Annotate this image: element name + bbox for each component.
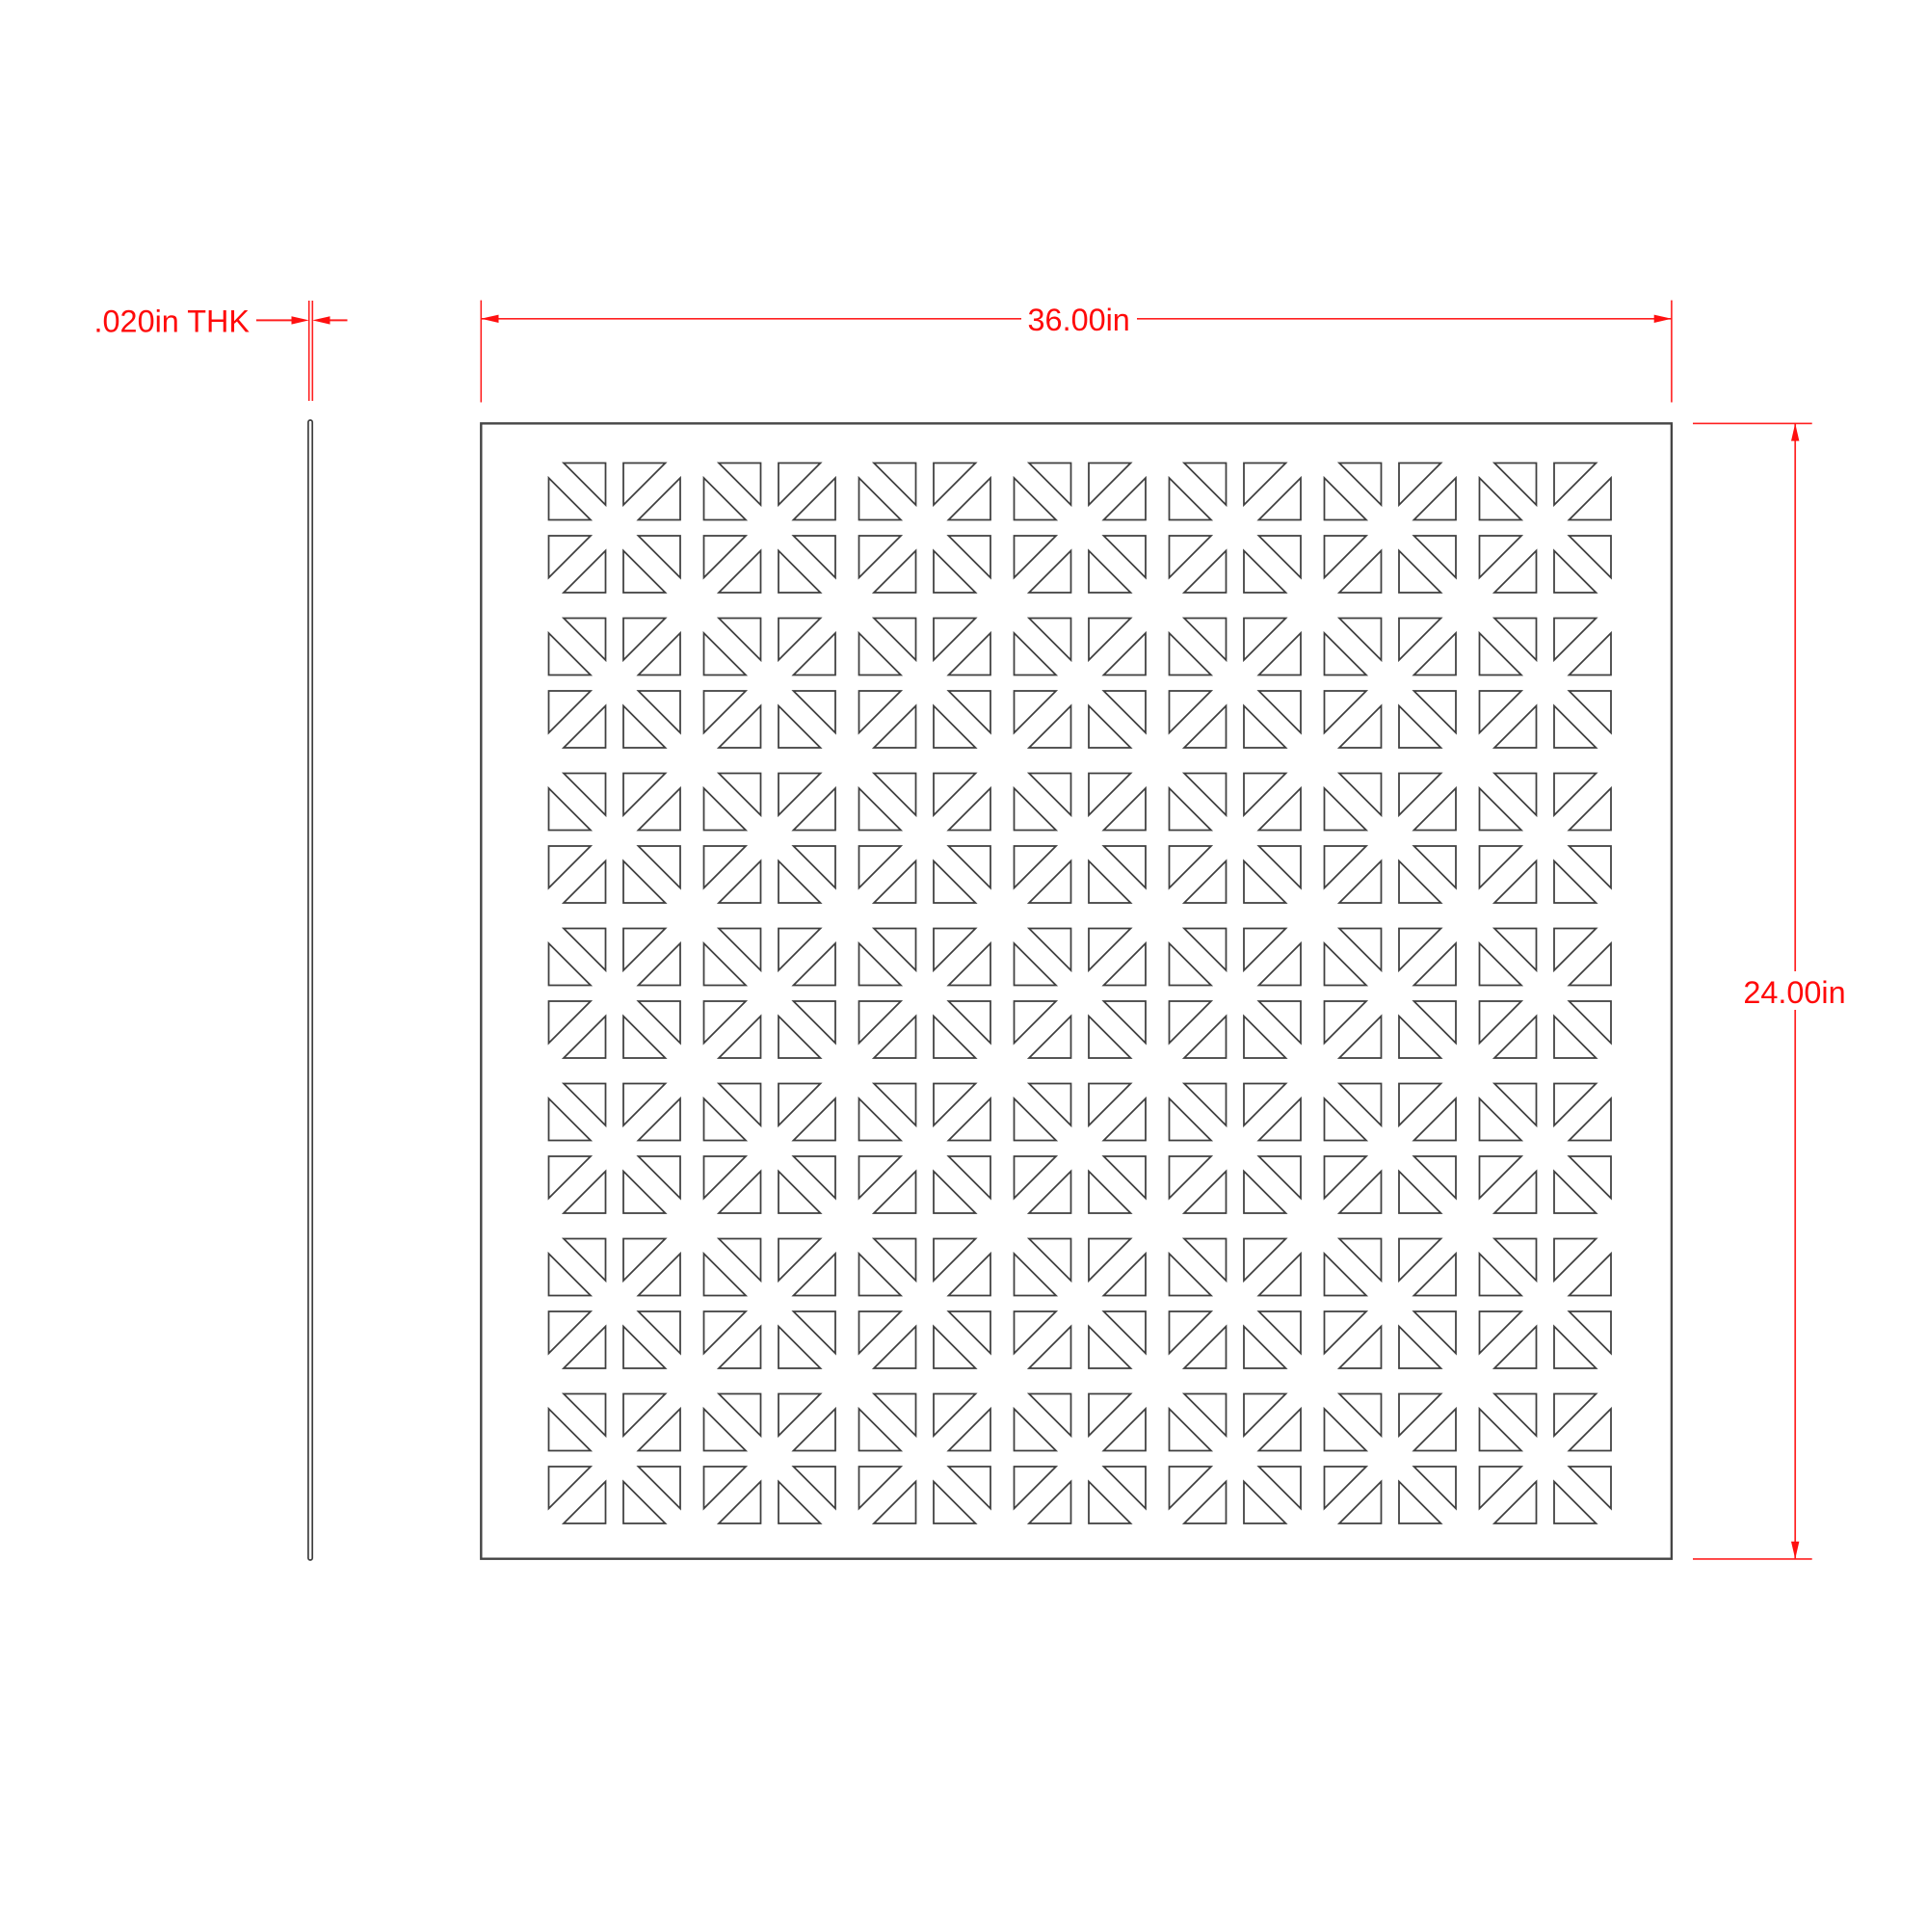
svg-text:.020in THK: .020in THK [94, 304, 251, 339]
svg-text:36.00in: 36.00in [1028, 303, 1130, 337]
svg-text:24.00in: 24.00in [1743, 975, 1845, 1010]
